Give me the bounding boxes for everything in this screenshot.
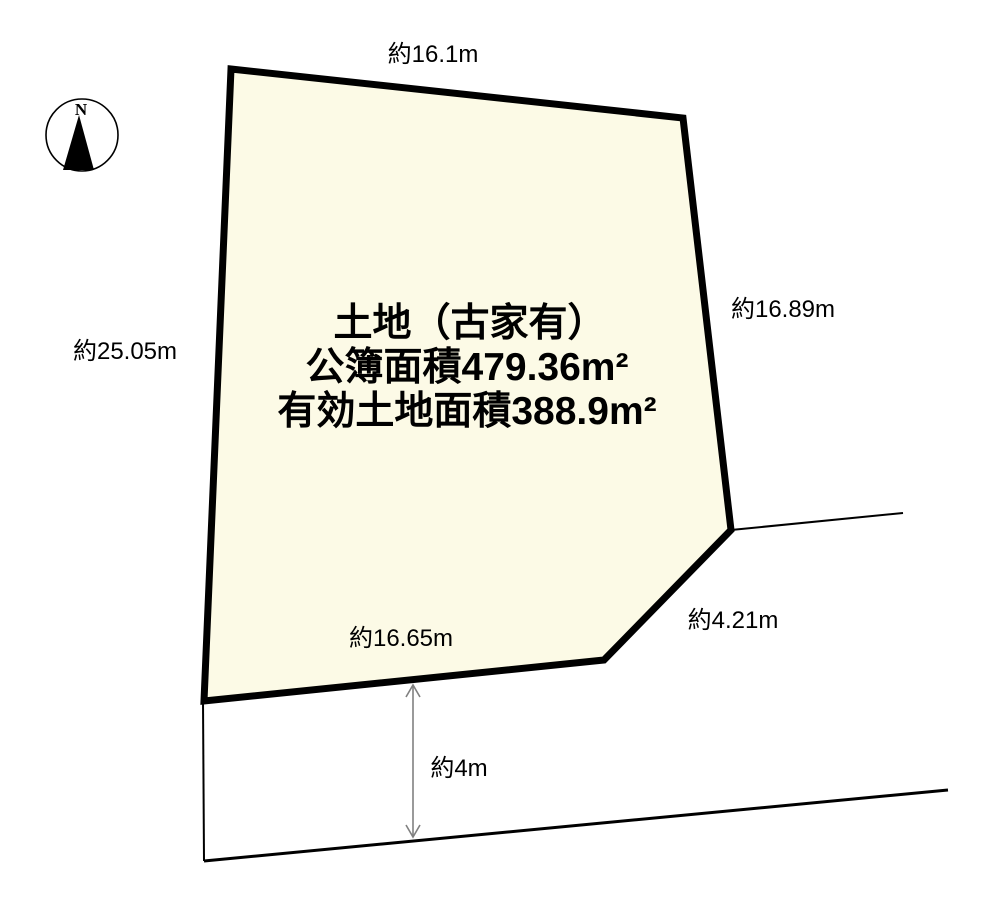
dimension-label-right: 約16.89m [731, 296, 835, 323]
parcel-title-line2: 公簿面積479.36m² [306, 346, 629, 389]
road-width-arrow [406, 685, 420, 837]
compass: N [46, 99, 118, 171]
parcel-title-line3: 有効土地面積388.9m² [277, 390, 656, 433]
parcel-title-line1: 土地（古家有） [333, 302, 606, 345]
dimension-label-bottom: 約16.65m [349, 625, 453, 652]
boundary-line-east [731, 513, 903, 530]
land-plot-diagram: N 約16.1m 約16.89m 約25.05m 約16.65m 約4.21m … [0, 0, 991, 903]
parcel-description: 土地（古家有） 公簿面積479.36m² 有効土地面積388.9m² [277, 302, 656, 433]
dimension-label-diagonal: 約4.21m [688, 607, 779, 634]
dimension-label-left: 約25.05m [73, 338, 177, 365]
dimension-label-road-width: 約4m [430, 755, 487, 782]
plot-drawing: N 約16.1m 約16.89m 約25.05m 約16.65m 約4.21m … [0, 0, 991, 903]
compass-north-label: N [75, 100, 88, 119]
road-edge-bottom [204, 790, 948, 861]
road-edge-left [203, 701, 204, 861]
dimension-label-top: 約16.1m [388, 41, 479, 68]
